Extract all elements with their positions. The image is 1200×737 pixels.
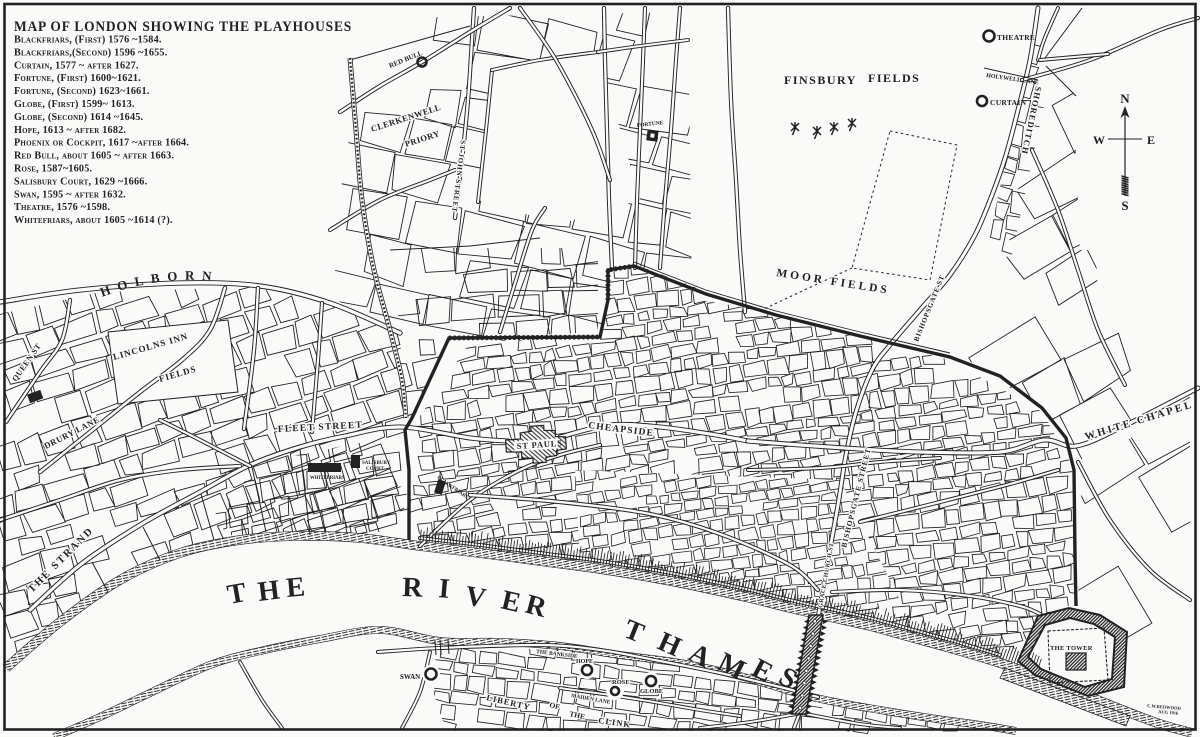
svg-text:W: W [1093,133,1105,147]
svg-text:Fortune, (First) 1600~1621.: Fortune, (First) 1600~1621. [14,73,141,84]
svg-text:N: N [1120,91,1130,106]
svg-text:Fortune, (Second) 1623~1661.: Fortune, (Second) 1623~1661. [14,86,150,97]
svg-text:Blackfriars,(Second) 1596 ~165: Blackfriars,(Second) 1596 ~1655. [14,47,168,58]
svg-text:THE TOWER: THE TOWER [1050,645,1093,652]
svg-text:Globe, (Second) 1614 ~1645.: Globe, (Second) 1614 ~1645. [14,112,144,123]
svg-text:Phoenix or Cockpit, 1617 ~afte: Phoenix or Cockpit, 1617 ~after 1664. [14,138,189,149]
svg-text:FIELDS: FIELDS [868,71,920,85]
svg-text:R: R [402,572,424,604]
svg-text:COURT: COURT [366,467,385,472]
svg-text:Rose, 1587~1605.: Rose, 1587~1605. [14,164,93,175]
svg-text:Theatre, 1576 ~1598.: Theatre, 1576 ~1598. [14,202,110,213]
svg-text:SWAN: SWAN [400,673,420,681]
svg-text:SALISBURY: SALISBURY [362,461,391,466]
svg-text:FINSBURY: FINSBURY [784,73,857,87]
svg-text:ROSE: ROSE [612,679,630,686]
svg-text:Globe, (First) 1599~ 1613.: Globe, (First) 1599~ 1613. [14,99,135,110]
svg-text:Whitefriars, about 1605 ~1614: Whitefriars, about 1605 ~1614 (?). [14,215,173,226]
svg-text:THEATRE: THEATRE [997,33,1035,42]
svg-text:Swan, 1595 ~ after 1632.: Swan, 1595 ~ after 1632. [14,189,126,200]
svg-text:E: E [285,571,306,604]
svg-text:Salisbury Court, 1629 ~1666.: Salisbury Court, 1629 ~1666. [14,176,148,187]
svg-text:GLOBE: GLOBE [640,688,663,695]
svg-text:S: S [1121,198,1128,213]
svg-text:MAP OF LONDON SHOWING THE PLAY: MAP OF LONDON SHOWING THE PLAYHOUSES [14,19,352,35]
svg-text:CURTAIN: CURTAIN [990,98,1027,107]
svg-text:E: E [1147,133,1155,147]
svg-text:H: H [256,574,282,607]
svg-text:HOPE: HOPE [576,659,593,665]
svg-text:Hope, 1613 ~ after 1682.: Hope, 1613 ~ after 1682. [14,125,126,136]
svg-text:WHITEFRIARS: WHITEFRIARS [310,476,345,481]
svg-text:Red Bull, about 1605 ~ after 1: Red Bull, about 1605 ~ after 1663. [14,151,174,162]
svg-text:Curtain, 1577 ~ after 1627.: Curtain, 1577 ~ after 1627. [14,60,139,71]
svg-text:Blackfriars, (First) 1576 ~158: Blackfriars, (First) 1576 ~1584. [14,35,162,46]
